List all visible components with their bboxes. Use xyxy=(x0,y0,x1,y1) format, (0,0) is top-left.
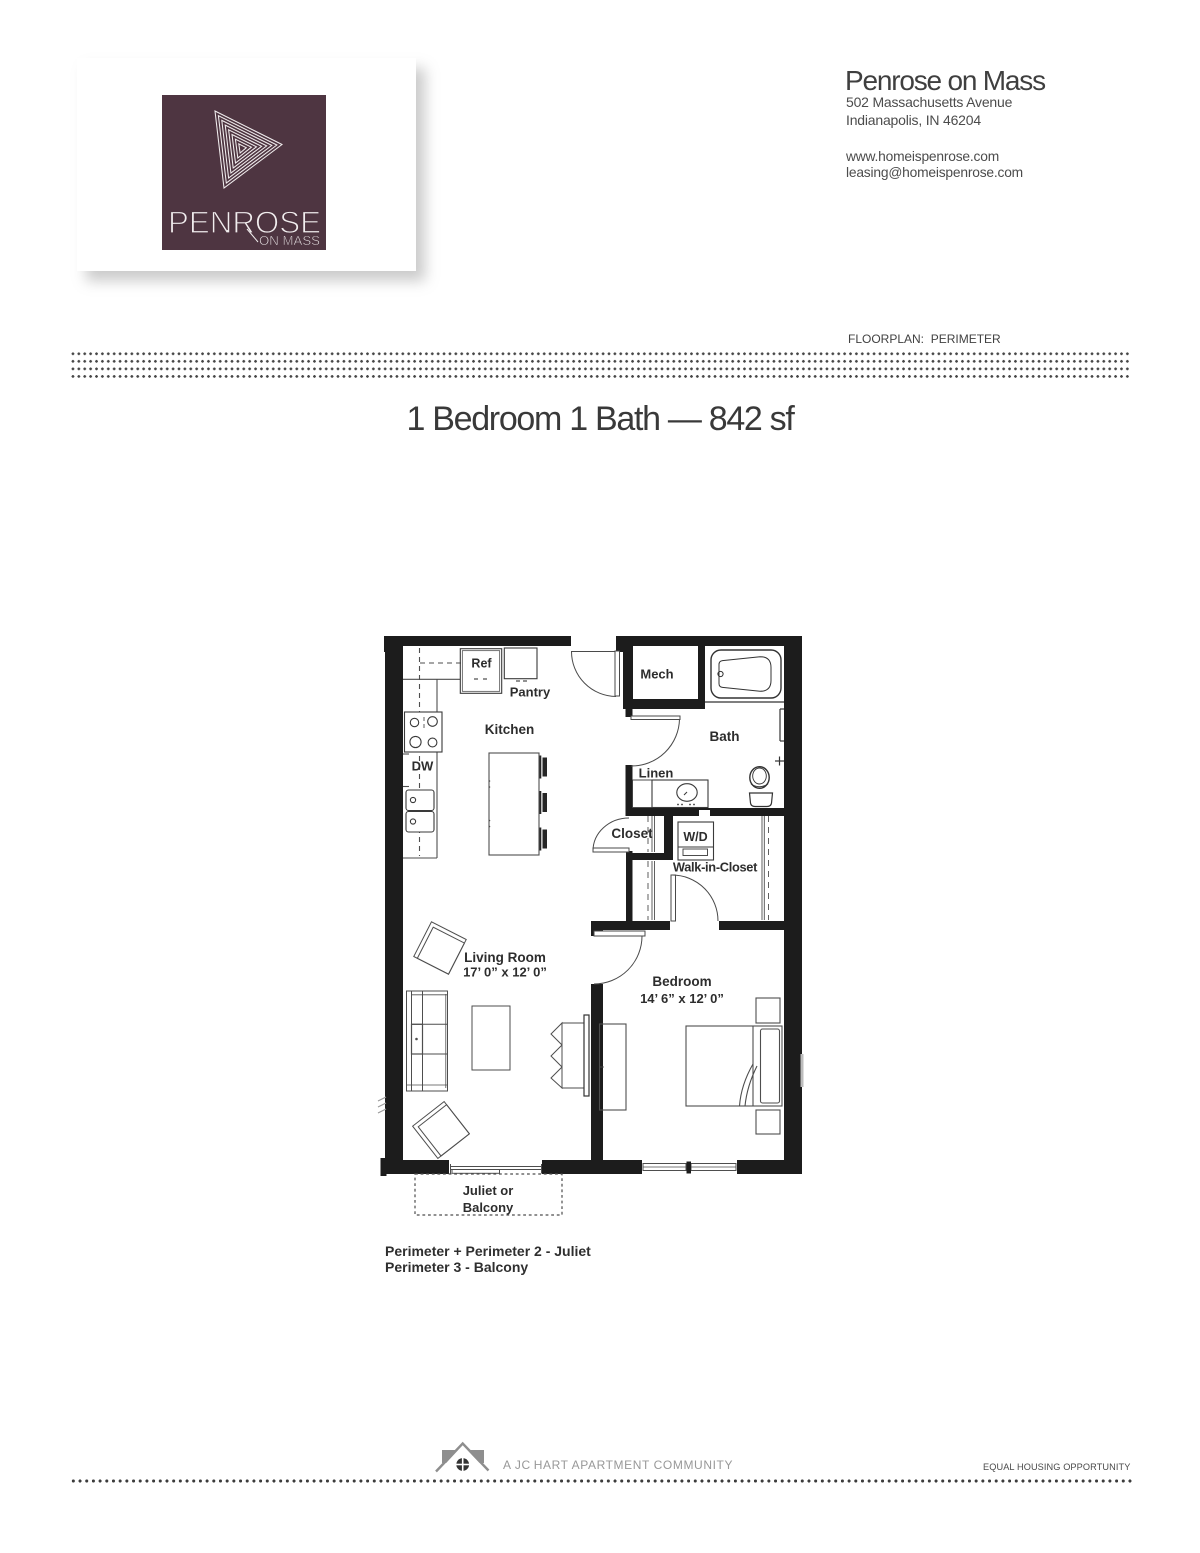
svg-text:W/D: W/D xyxy=(683,830,707,844)
svg-text:Bedroom: Bedroom xyxy=(652,974,711,989)
svg-text:Mech: Mech xyxy=(640,667,673,682)
svg-text:Closet: Closet xyxy=(611,826,653,841)
svg-text:ON MASS: ON MASS xyxy=(259,234,320,248)
svg-text:Walk-in-Closet: Walk-in-Closet xyxy=(673,860,758,875)
svg-text:Linen: Linen xyxy=(639,766,674,781)
svg-text:Bath: Bath xyxy=(710,729,740,744)
svg-text:17’ 0” x 12’ 0”: 17’ 0” x 12’ 0” xyxy=(463,965,547,980)
svg-text:Kitchen: Kitchen xyxy=(485,722,535,737)
svg-text:Balcony: Balcony xyxy=(463,1200,514,1215)
svg-text:Living Room: Living Room xyxy=(464,950,546,965)
svg-text:Ref: Ref xyxy=(471,657,492,671)
svg-text:DW: DW xyxy=(412,759,434,774)
svg-text:14’ 6” x 12’ 0”: 14’ 6” x 12’ 0” xyxy=(640,991,724,1006)
svg-text:Pantry: Pantry xyxy=(510,685,551,700)
svg-text:Juliet or: Juliet or xyxy=(463,1183,514,1198)
